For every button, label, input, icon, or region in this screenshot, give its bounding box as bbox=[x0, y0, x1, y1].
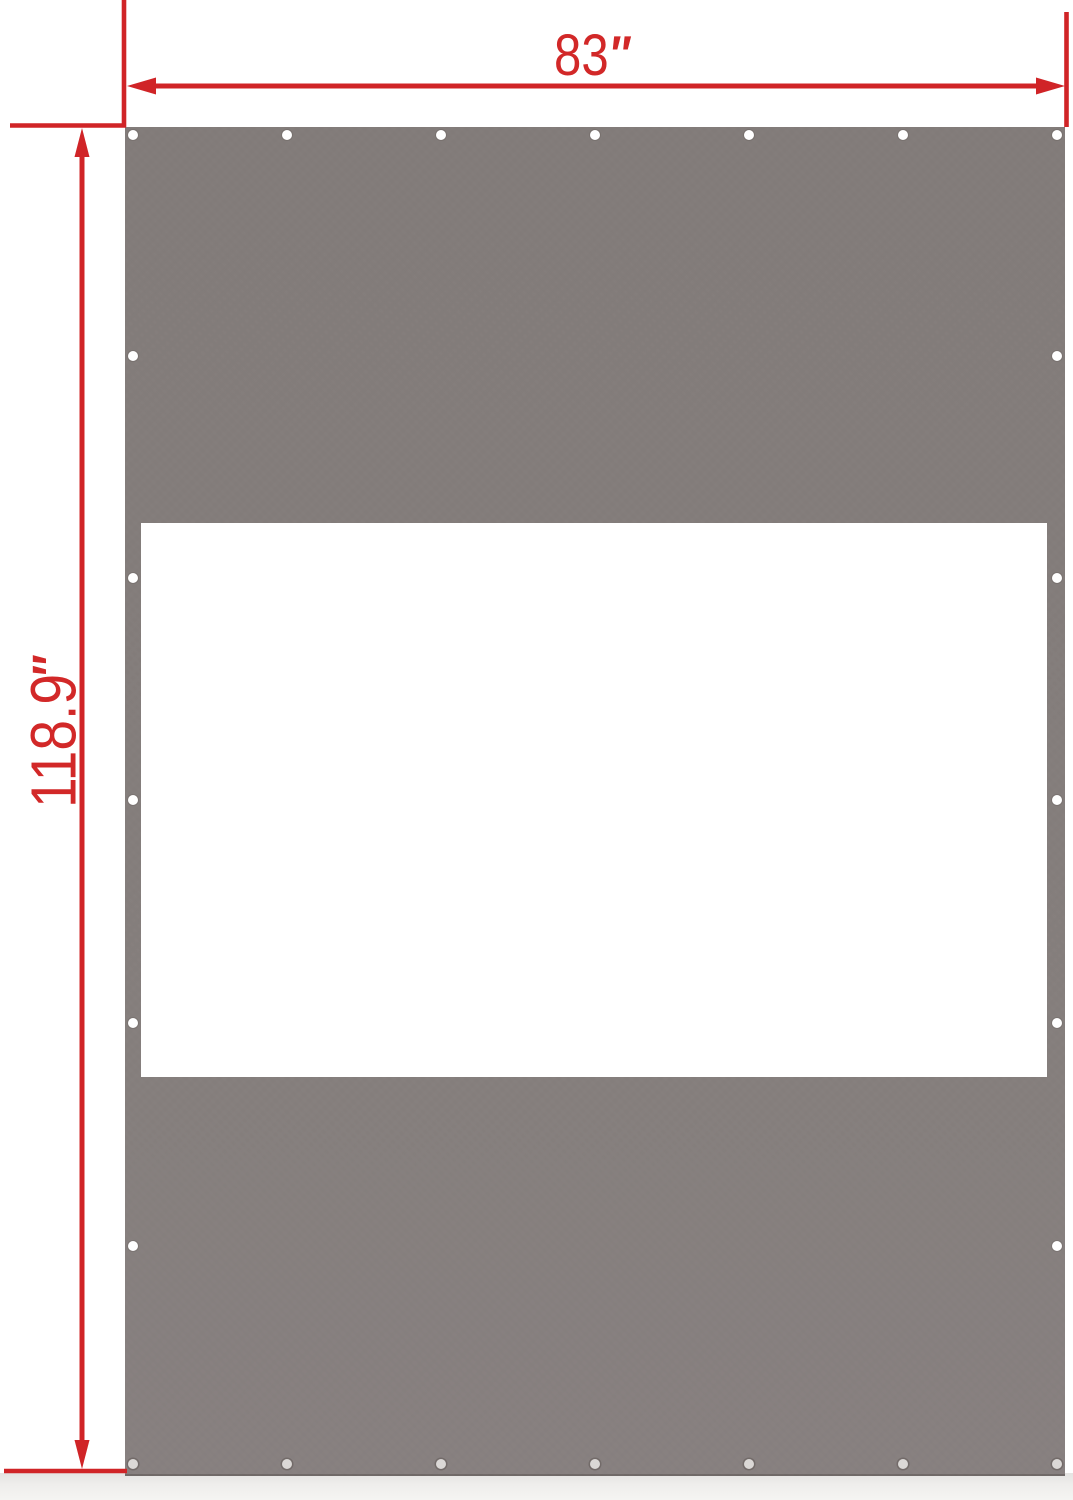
svg-text:118.9″: 118.9″ bbox=[18, 655, 90, 808]
svg-text:83″: 83″ bbox=[554, 23, 631, 88]
